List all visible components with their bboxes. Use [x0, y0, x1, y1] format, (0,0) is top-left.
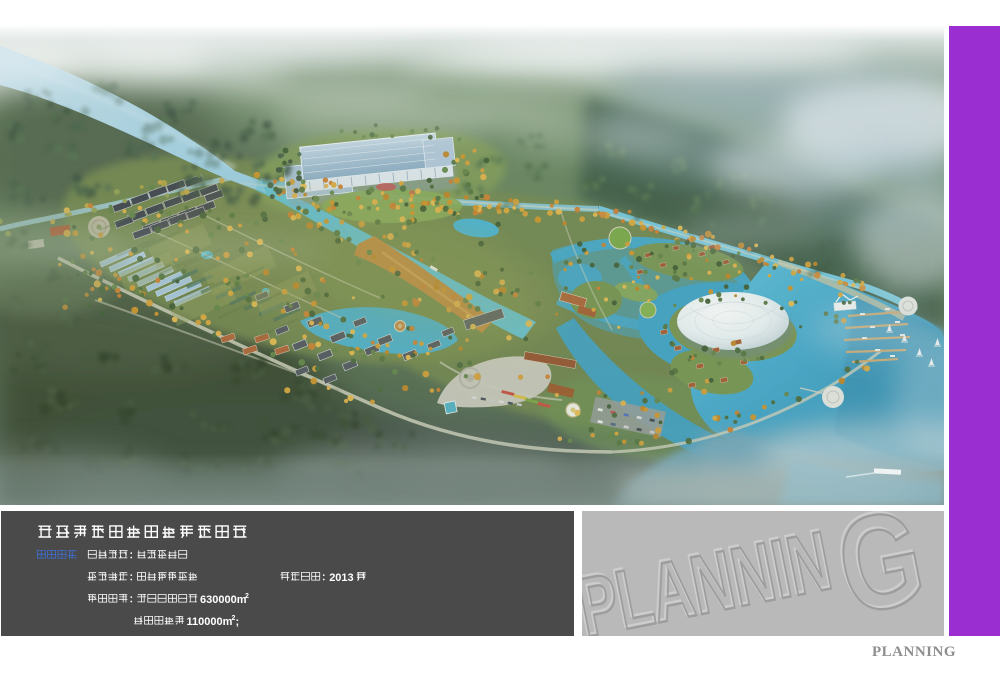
svg-text:G: G — [827, 511, 936, 636]
svg-text:;: ; — [236, 616, 240, 628]
svg-text:2: 2 — [245, 593, 249, 600]
svg-text:110000m: 110000m — [187, 616, 233, 628]
svg-text:2013: 2013 — [329, 572, 353, 584]
svg-text:630000m: 630000m — [200, 594, 247, 606]
